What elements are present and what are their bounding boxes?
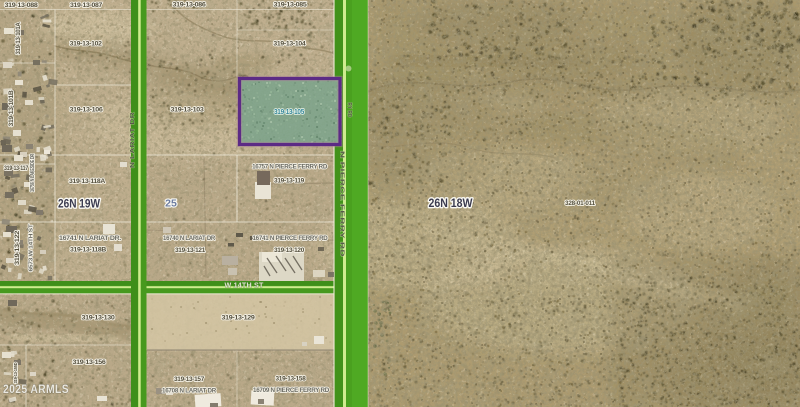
svg-text:319-13-087: 319-13-087 <box>70 2 103 9</box>
svg-text:6573 W 14TH ST: 6573 W 14TH ST <box>29 224 35 272</box>
svg-text:319-13-104: 319-13-104 <box>273 41 306 48</box>
svg-text:16709 N PIERCE FERRY RD: 16709 N PIERCE FERRY RD <box>253 387 329 394</box>
svg-text:16756 N LAKESIDE DR: 16756 N LAKESIDE DR <box>30 154 36 192</box>
svg-text:319-13-086: 319-13-086 <box>173 2 207 9</box>
svg-text:16741 N LARIAT DR.: 16741 N LARIAT DR. <box>59 235 121 242</box>
svg-text:319-13-155D: 319-13-155D <box>13 362 19 384</box>
svg-text:319-13-105: 319-13-105 <box>274 107 304 116</box>
svg-text:319-13-158: 319-13-158 <box>276 376 306 383</box>
svg-text:N LARIAT DR: N LARIAT DR <box>130 111 136 168</box>
svg-text:319-13-101B: 319-13-101B <box>8 90 15 127</box>
svg-text:319-13-157: 319-13-157 <box>174 376 204 383</box>
svg-text:328-01-011: 328-01-011 <box>565 200 596 207</box>
svg-text:RY RD: RY RD <box>346 103 352 118</box>
svg-text:319-13-117: 319-13-117 <box>4 166 29 172</box>
svg-text:16740 N LARIAT DR: 16740 N LARIAT DR <box>163 235 215 242</box>
svg-text:319-13-103: 319-13-103 <box>171 107 205 114</box>
svg-text:25: 25 <box>165 198 177 210</box>
svg-text:319-13-156: 319-13-156 <box>73 359 107 366</box>
svg-text:26N 18W: 26N 18W <box>429 198 473 210</box>
svg-text:319-13-088: 319-13-088 <box>5 2 39 9</box>
svg-text:319-13-130: 319-13-130 <box>82 315 116 322</box>
svg-text:319-13-106: 319-13-106 <box>70 107 104 114</box>
svg-text:319-13-085: 319-13-085 <box>274 2 308 9</box>
svg-text:319-13-101A: 319-13-101A <box>15 22 22 55</box>
svg-text:319-13-121: 319-13-121 <box>175 247 205 254</box>
svg-text:W 14TH ST: W 14TH ST <box>225 283 265 290</box>
svg-text:319-13-118A: 319-13-118A <box>69 178 105 185</box>
svg-text:26N 19W: 26N 19W <box>58 199 100 211</box>
svg-text:319-13-119: 319-13-119 <box>274 178 304 185</box>
svg-text:N PIERCE FERRY RD: N PIERCE FERRY RD <box>339 151 345 257</box>
svg-text:319-13-120: 319-13-120 <box>274 247 304 254</box>
svg-text:16741 N PIERCE FERRY RD: 16741 N PIERCE FERRY RD <box>253 235 328 242</box>
svg-text:319-13-122: 319-13-122 <box>14 230 21 265</box>
svg-text:2025 ARMLS: 2025 ARMLS <box>3 382 69 396</box>
svg-text:16757 N PIERCE FERRY RD: 16757 N PIERCE FERRY RD <box>252 164 327 171</box>
svg-text:319-13-129: 319-13-129 <box>222 315 256 322</box>
svg-text:319-13-118B: 319-13-118B <box>70 247 106 254</box>
svg-text:319-13-102: 319-13-102 <box>70 41 103 48</box>
svg-text:16708 N LARIAT DR: 16708 N LARIAT DR <box>162 388 216 395</box>
